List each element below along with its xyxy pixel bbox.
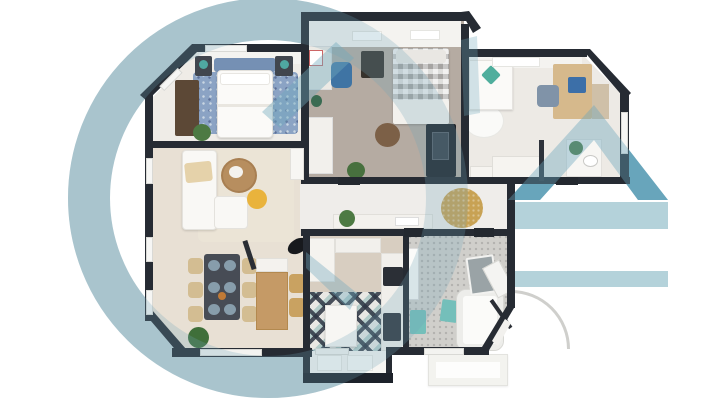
outdoor-planter <box>428 354 508 386</box>
floor-plan-render <box>0 0 711 400</box>
watermark-stripe-1 <box>512 202 668 229</box>
kids-desk-chair <box>537 85 559 107</box>
sill-bedroom2-2 <box>410 30 440 40</box>
watermark-stripe-2 <box>512 271 668 287</box>
doormark-bathroom <box>474 228 494 237</box>
kids-sink <box>583 155 598 167</box>
watermark-ring-tint <box>68 0 468 398</box>
wall-bathroom-right <box>507 181 515 308</box>
watermark-band-bedroom2-right <box>461 36 480 116</box>
window-bathroom-bottom <box>424 348 464 355</box>
wall-kids-top <box>466 49 587 57</box>
kids-laptop <box>568 77 586 93</box>
sill-kids-room <box>492 57 540 67</box>
